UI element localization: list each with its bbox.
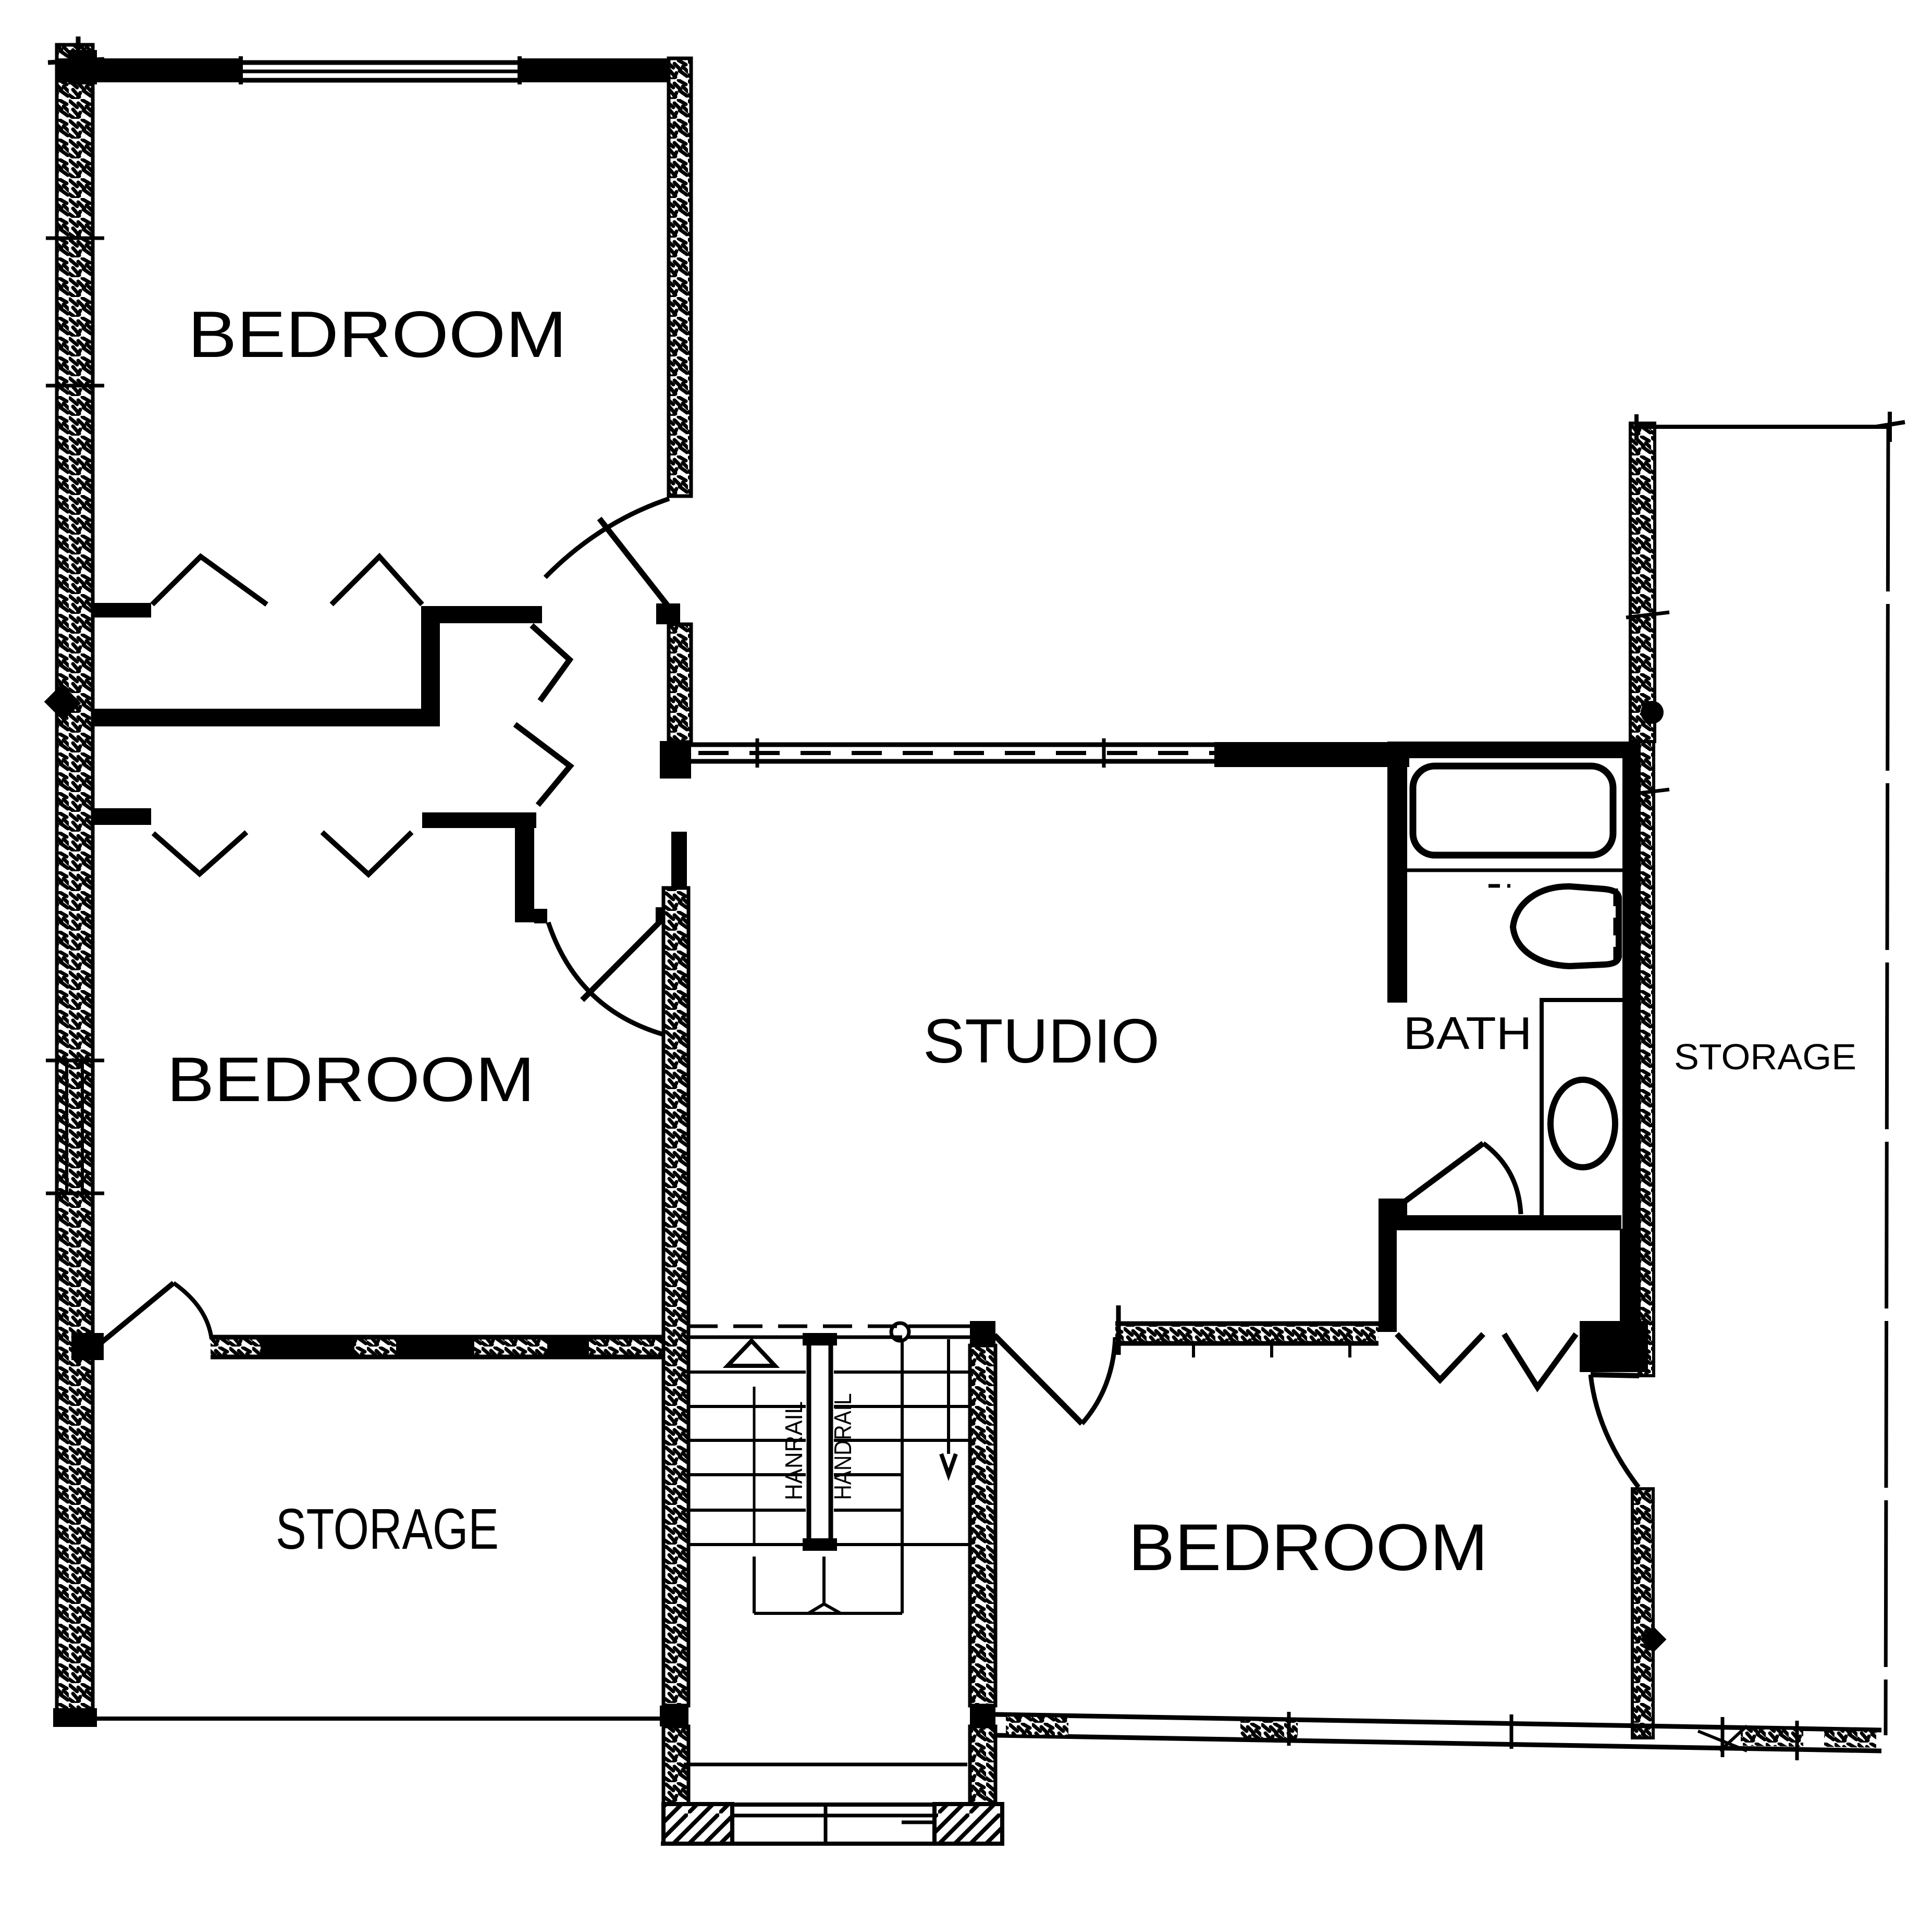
svg-text:HANDRAIL: HANDRAIL [829, 1393, 856, 1500]
svg-text:HANRAIL: HANRAIL [780, 1401, 807, 1500]
svg-text:BEDROOM: BEDROOM [167, 1044, 535, 1115]
svg-text:BATH: BATH [1404, 1007, 1532, 1059]
svg-text:STUDIO: STUDIO [923, 1006, 1160, 1076]
svg-text:STORAGE: STORAGE [276, 1497, 499, 1561]
svg-text:BEDROOM: BEDROOM [188, 298, 567, 371]
svg-text:STORAGE: STORAGE [1674, 1036, 1856, 1077]
svg-text:BEDROOM: BEDROOM [1128, 1510, 1488, 1584]
